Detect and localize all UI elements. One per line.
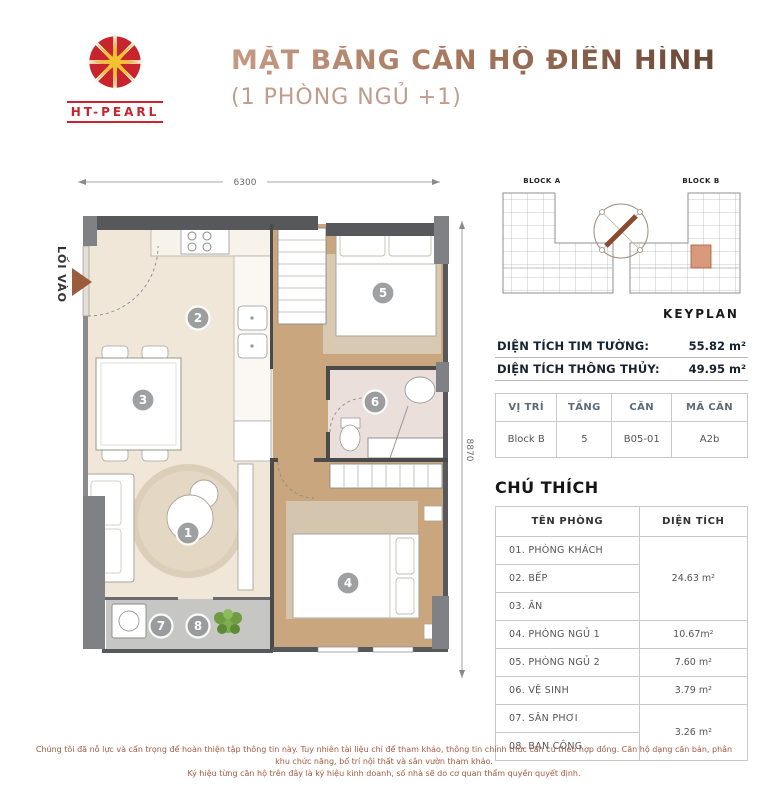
col-tang: TẦNG bbox=[557, 394, 612, 422]
legend-title: CHÚ THÍCH bbox=[495, 478, 748, 497]
legend-row-bedroom2: 05. PHÒNG NGỦ 2 7.60 m² bbox=[496, 649, 748, 677]
logo-wordmark: HT-PEARL bbox=[67, 101, 164, 123]
badge-laundry: 7 bbox=[150, 615, 173, 638]
keyplan: BLOCK A BLOCK B KEYPLAN bbox=[495, 173, 748, 323]
room-name: 02. BẾP bbox=[496, 565, 640, 593]
dim-height-label: 8870 bbox=[464, 439, 474, 462]
area-info: DIỆN TÍCH TIM TƯỜNG: 55.82 m² DIỆN TÍCH … bbox=[495, 335, 748, 381]
svg-text:7: 7 bbox=[157, 619, 165, 633]
thong-thuy-value: 49.95 m² bbox=[689, 362, 746, 376]
area-row-thong-thuy: DIỆN TÍCH THÔNG THỦY: 49.95 m² bbox=[495, 358, 748, 381]
floor-plan-svg: 6300 8870 LỐI VÀO 1 2 3 4 5 6 7 bbox=[38, 166, 486, 696]
floor-plan: 6300 8870 LỐI VÀO 1 2 3 4 5 6 7 bbox=[38, 166, 486, 696]
legend-row-bedroom1: 04. PHÒNG NGỦ 1 10.67m² bbox=[496, 621, 748, 649]
badge-living-room: 1 bbox=[177, 522, 200, 545]
value-ma-can: A2b bbox=[672, 422, 748, 458]
wardrobe-icon-bedroom4 bbox=[330, 464, 442, 488]
value-tang: 5 bbox=[557, 422, 612, 458]
ht-pearl-logo: HT-PEARL bbox=[54, 24, 176, 123]
keyplan-label: KEYPLAN bbox=[663, 307, 739, 321]
header-titles: MẶT BẰNG CĂN HỘ ĐIỂN HÌNH (1 PHÒNG NGỦ +… bbox=[231, 46, 751, 110]
block-b-outline bbox=[630, 193, 740, 293]
disclaimer-line2: Ký hiệu từng căn hộ trên đây là ký hiệu … bbox=[34, 768, 734, 780]
keyplan-svg: BLOCK A BLOCK B KEYPLAN bbox=[495, 173, 748, 323]
legend-col-room: TÊN PHÒNG bbox=[496, 507, 640, 537]
tim-tuong-value: 55.82 m² bbox=[689, 339, 746, 353]
svg-text:5: 5 bbox=[379, 286, 387, 300]
block-a-label: BLOCK A bbox=[523, 177, 560, 185]
compass-icon bbox=[594, 204, 648, 258]
badge-bathroom: 6 bbox=[364, 391, 387, 414]
legend-header-row: TÊN PHÒNG DIỆN TÍCH bbox=[496, 507, 748, 537]
tv-cabinet-icon bbox=[238, 464, 253, 590]
info-panel: BLOCK A BLOCK B KEYPLAN bbox=[495, 173, 748, 761]
plant-icon bbox=[214, 609, 242, 634]
entry-label: LỐI VÀO bbox=[55, 246, 70, 303]
wardrobe-icon-hall bbox=[278, 228, 326, 324]
unit-info-table: VỊ TRÍ TẦNG CĂN MÃ CĂN Block B 5 B05-01 … bbox=[495, 393, 748, 458]
badge-bedroom2: 5 bbox=[372, 282, 395, 305]
legend-row-laundry: 07. SÂN PHƠI 3.26 m² bbox=[496, 705, 748, 733]
washing-machine-icon bbox=[112, 604, 146, 638]
floorplan-brochure-page: HT-PEARL MẶT BẰNG CĂN HỘ ĐIỂN HÌNH (1 PH… bbox=[0, 0, 768, 800]
dimension-width: 6300 bbox=[78, 175, 440, 188]
unit-table-header-row: VỊ TRÍ TẦNG CĂN MÃ CĂN bbox=[496, 394, 748, 422]
svg-text:3: 3 bbox=[139, 393, 147, 407]
highlighted-unit bbox=[691, 245, 711, 268]
thong-thuy-label: DIỆN TÍCH THÔNG THỦY: bbox=[497, 362, 660, 376]
svg-text:2: 2 bbox=[194, 311, 202, 325]
col-can: CĂN bbox=[612, 394, 672, 422]
value-vi-tri: Block B bbox=[496, 422, 557, 458]
dimension-height: 8870 bbox=[459, 221, 474, 678]
badge-kitchen: 2 bbox=[187, 307, 210, 330]
tim-tuong-label: DIỆN TÍCH TIM TƯỜNG: bbox=[497, 339, 649, 353]
legend-table: TÊN PHÒNG DIỆN TÍCH 01. PHÒNG KHÁCH 24.6… bbox=[495, 506, 748, 761]
legend-row-bathroom: 06. VỆ SINH 3.79 m² bbox=[496, 677, 748, 705]
page-subtitle: (1 PHÒNG NGỦ +1) bbox=[231, 85, 751, 110]
area-bathroom: 3.79 m² bbox=[639, 677, 747, 705]
badge-bedroom1: 4 bbox=[337, 572, 360, 595]
room-name: 06. VỆ SINH bbox=[496, 677, 640, 705]
dim-width-label: 6300 bbox=[234, 178, 257, 188]
area-row-tim-tuong: DIỆN TÍCH TIM TƯỜNG: 55.82 m² bbox=[495, 335, 748, 358]
legend-row-living: 01. PHÒNG KHÁCH 24.63 m² bbox=[496, 537, 748, 565]
svg-text:1: 1 bbox=[184, 526, 192, 540]
col-ma-can: MÃ CĂN bbox=[672, 394, 748, 422]
svg-text:6: 6 bbox=[371, 395, 379, 409]
room-name: 07. SÂN PHƠI bbox=[496, 705, 640, 733]
badge-balcony: 8 bbox=[187, 615, 210, 638]
room-name: 03. ĂN bbox=[496, 593, 640, 621]
value-can: B05-01 bbox=[612, 422, 672, 458]
svg-text:4: 4 bbox=[344, 576, 352, 590]
legend-col-area: DIỆN TÍCH bbox=[639, 507, 747, 537]
room-name: 05. PHÒNG NGỦ 2 bbox=[496, 649, 640, 677]
disclaimer: Chúng tôi đã nỗ lực và cẩn trọng để hoàn… bbox=[34, 744, 734, 780]
svg-text:8: 8 bbox=[194, 619, 202, 633]
area-living-kitchen-dining: 24.63 m² bbox=[639, 537, 747, 621]
unit-table-value-row: Block B 5 B05-01 A2b bbox=[496, 422, 748, 458]
starburst-logo-icon bbox=[77, 24, 153, 100]
room-name: 01. PHÒNG KHÁCH bbox=[496, 537, 640, 565]
area-bedroom1: 10.67m² bbox=[639, 621, 747, 649]
room-name: 04. PHÒNG NGỦ 1 bbox=[496, 621, 640, 649]
area-bedroom2: 7.60 m² bbox=[639, 649, 747, 677]
page-title: MẶT BẰNG CĂN HỘ ĐIỂN HÌNH bbox=[231, 46, 751, 76]
disclaimer-line1: Chúng tôi đã nỗ lực và cẩn trọng để hoàn… bbox=[34, 744, 734, 768]
block-b-label: BLOCK B bbox=[682, 177, 719, 185]
col-vi-tri: VỊ TRÍ bbox=[496, 394, 557, 422]
badge-dining: 3 bbox=[132, 389, 155, 412]
